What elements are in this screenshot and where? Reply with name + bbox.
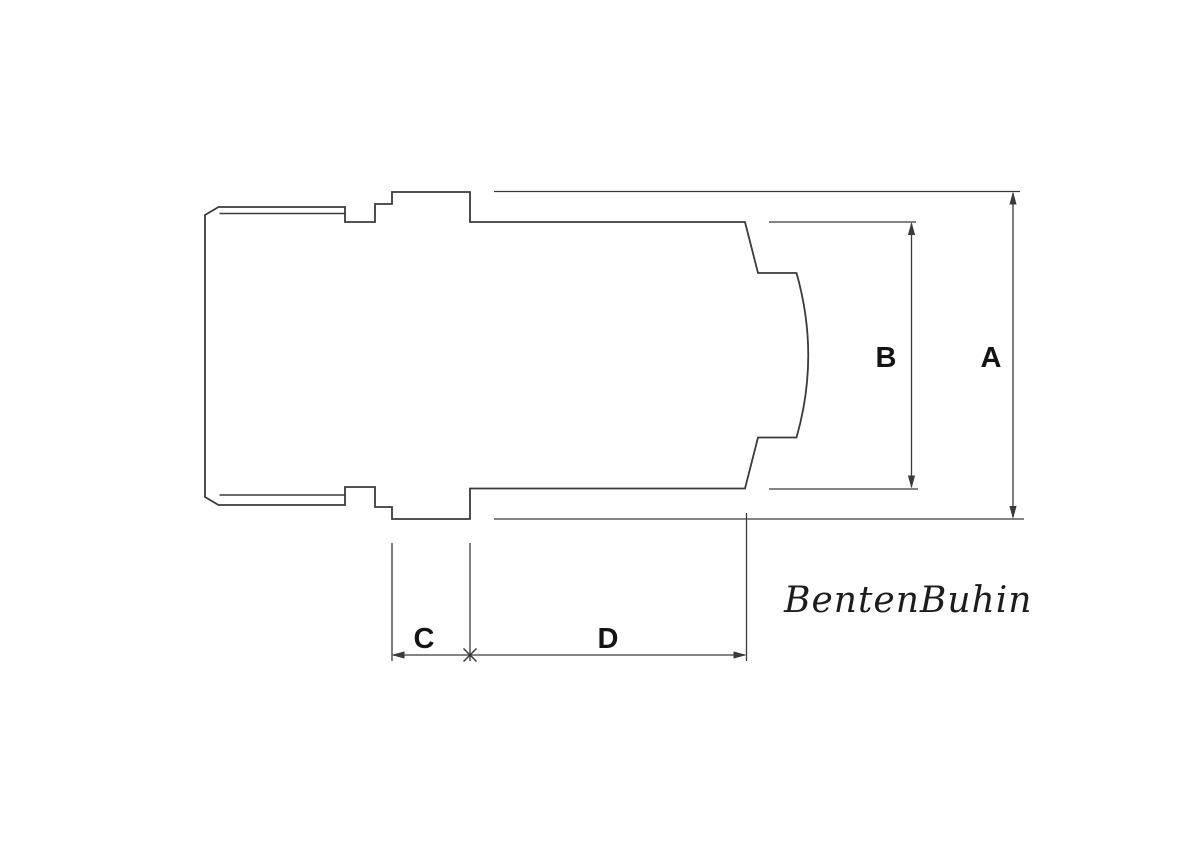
dim-a-arrow-down (1009, 506, 1016, 519)
watermark-signature: BentenBuhin (783, 580, 1032, 621)
dim-a-label: A (981, 342, 1002, 374)
dim-c-label: C (414, 623, 435, 655)
dim-d-label: D (598, 623, 619, 655)
dim-b-label: B (876, 342, 897, 374)
dimension-a (494, 192, 1024, 520)
technical-drawing-svg: A B C D BentenBuhin (0, 0, 1200, 848)
dim-d-arrow-right (734, 651, 747, 658)
dim-c-arrow-left (392, 651, 405, 658)
dim-a-arrow-up (1009, 192, 1016, 205)
dim-b-arrow-down (908, 476, 915, 489)
dimension-c-d (392, 513, 747, 662)
dim-b-arrow-up (908, 222, 915, 235)
part-outline (205, 192, 808, 519)
part-profile (205, 192, 808, 519)
drawing-canvas: A B C D BentenBuhin (0, 0, 1200, 848)
